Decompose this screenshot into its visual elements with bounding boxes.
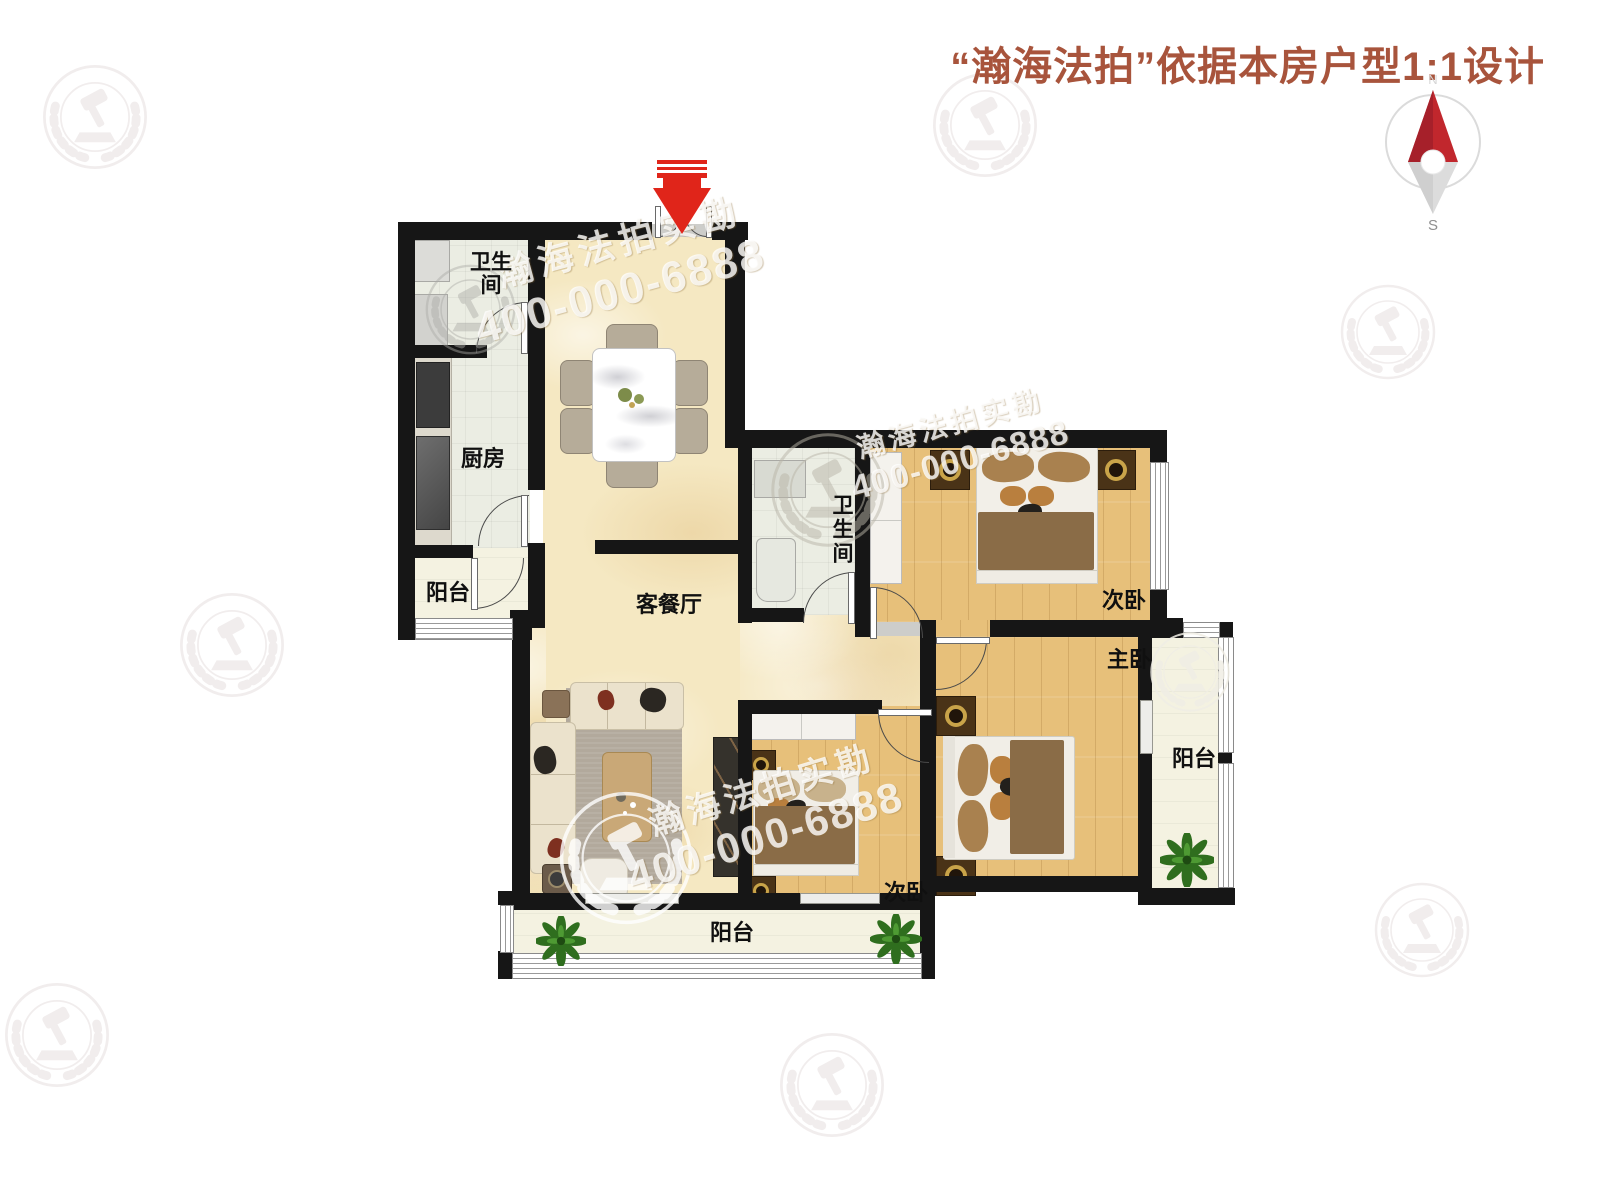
dining-chair: [560, 408, 596, 454]
wall: [1138, 888, 1235, 905]
wall: [738, 700, 752, 896]
wall: [738, 608, 804, 622]
wall: [528, 240, 545, 490]
room-label-living: 客餐厅: [636, 587, 702, 619]
sliding-door: [800, 893, 880, 904]
wall: [752, 700, 882, 714]
wall: [855, 445, 870, 637]
room-label-balcony-left: 阳台: [426, 575, 470, 607]
room-label-bathroom-top: 卫生间: [465, 251, 517, 297]
entrance-arrow-icon: [653, 152, 711, 236]
bathroom-sink: [414, 240, 450, 282]
table-centerpiece: [618, 388, 632, 402]
toilet: [756, 538, 796, 602]
bed-footboard: [753, 864, 859, 876]
wall: [595, 540, 752, 554]
dining-table: [592, 348, 676, 462]
wall: [935, 876, 1152, 892]
wall: [498, 891, 514, 905]
bed-blanket: [978, 512, 1094, 570]
entrance-arrow-stem: [663, 178, 701, 188]
room-label-balcony-bottom: 阳台: [710, 915, 754, 947]
door-leaf: [521, 302, 528, 354]
wall: [415, 545, 473, 558]
lamp-icon: [939, 459, 961, 481]
dining-chair: [672, 408, 708, 454]
plant-icon: [1160, 833, 1214, 887]
wall: [1150, 588, 1167, 620]
window: [1218, 637, 1234, 753]
window: [1183, 622, 1220, 638]
window: [415, 618, 513, 640]
room-label-bathroom-middle: 卫生间: [826, 494, 856, 566]
background-watermark-logo-icon: [177, 590, 287, 700]
lamp-icon: [945, 705, 967, 727]
window: [500, 905, 514, 953]
window: [1218, 763, 1234, 888]
nightstand: [936, 696, 976, 736]
room-label-bedroom-top-right: 次卧: [1102, 583, 1146, 615]
bed-headboard: [943, 736, 955, 858]
room-label-balcony-right: 阳台: [1172, 741, 1216, 773]
side-table-fan: [542, 864, 572, 894]
nightstand: [930, 450, 970, 490]
coffee-table-decor: [616, 792, 626, 802]
window: [1150, 462, 1169, 590]
wall: [712, 222, 748, 240]
background-watermark-logo-icon: [1372, 880, 1472, 980]
stove: [416, 362, 450, 428]
fan-icon: [548, 870, 566, 888]
bed-pillow: [804, 776, 846, 802]
washing-machine: [412, 294, 448, 352]
door-leaf: [936, 637, 990, 644]
wall: [725, 430, 1167, 448]
wall: [725, 240, 745, 432]
bed-footboard: [976, 570, 1098, 584]
dining-chair: [672, 360, 708, 406]
door-leaf: [471, 558, 478, 610]
compass-south-label: S: [1428, 217, 1438, 232]
entrance-arrow-bar: [657, 160, 707, 178]
side-table: [542, 690, 570, 718]
door-leaf: [521, 495, 528, 547]
dining-chair: [560, 360, 596, 406]
sofa-top-section: [570, 682, 684, 730]
bed-blanket: [1010, 740, 1064, 854]
bathroom2-sink: [754, 460, 806, 498]
door-leaf: [870, 587, 877, 639]
room-label-kitchen: 厨房: [461, 441, 505, 473]
sliding-door: [585, 893, 679, 904]
background-watermark-logo-icon: [40, 62, 150, 172]
wall: [1150, 618, 1183, 638]
wall: [398, 240, 415, 640]
room-label-master: 主卧: [1107, 642, 1151, 674]
wall: [398, 222, 652, 240]
wall: [738, 445, 752, 623]
compass-north-label: N: [1428, 72, 1437, 87]
wardrobe: [870, 452, 902, 584]
sliding-door: [1140, 700, 1153, 754]
background-watermark-logo-icon: [777, 1030, 887, 1140]
entrance-arrow-head: [653, 188, 711, 234]
background-watermark-logo-icon: [1338, 282, 1438, 382]
fridge: [416, 436, 450, 530]
wall: [990, 620, 1150, 637]
background-watermark-logo-icon: [2, 980, 112, 1090]
lamp-icon: [1105, 459, 1127, 481]
bed-blanket: [755, 806, 855, 864]
wall: [1150, 430, 1167, 462]
coffee-table: [602, 752, 652, 842]
plant-icon: [536, 916, 586, 966]
compass-hub: [1421, 150, 1445, 174]
plant-icon: [870, 914, 922, 964]
room-label-bedroom-bottom: 次卧: [884, 875, 928, 907]
nightstand: [1096, 450, 1136, 490]
door-leaf: [878, 709, 932, 716]
compass: N S: [1358, 72, 1508, 232]
door-leaf: [848, 572, 855, 624]
wall: [512, 626, 530, 896]
bed-cushion: [1000, 486, 1026, 506]
wall: [528, 543, 545, 628]
